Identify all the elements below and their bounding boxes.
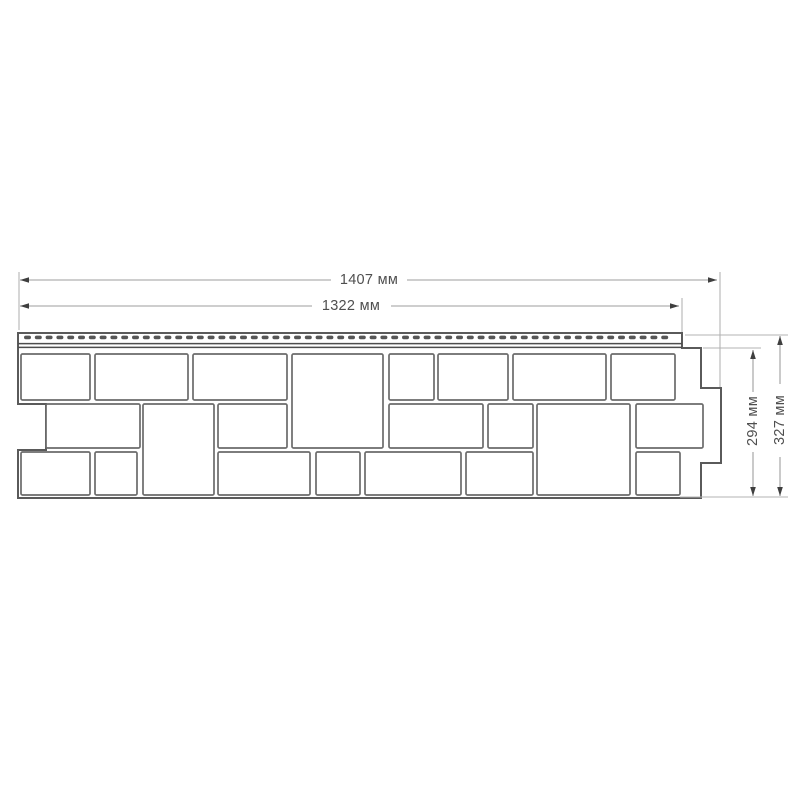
nail-slot xyxy=(499,336,506,340)
nail-slot xyxy=(24,336,31,340)
stone-block xyxy=(95,452,137,495)
nail-slot xyxy=(391,336,398,340)
nail-slot xyxy=(164,336,171,340)
nail-slot xyxy=(110,336,117,340)
nail-slot xyxy=(478,336,485,340)
nail-slot xyxy=(283,336,290,340)
nail-slot xyxy=(348,336,355,340)
technical-drawing-canvas: 1407 мм1322 мм294 мм327 мм xyxy=(0,0,800,800)
stone-block xyxy=(365,452,461,495)
nail-slot xyxy=(197,336,204,340)
nail-slot xyxy=(629,336,636,340)
nail-slot xyxy=(553,336,560,340)
nail-slot xyxy=(89,336,96,340)
nail-slot xyxy=(56,336,63,340)
stone-block xyxy=(466,452,533,495)
nail-slot xyxy=(305,336,312,340)
stone-block xyxy=(636,404,703,448)
nail-slot xyxy=(359,336,366,340)
nail-slot xyxy=(575,336,582,340)
stone-block xyxy=(218,452,310,495)
nail-slot xyxy=(67,336,74,340)
nail-slot xyxy=(208,336,215,340)
nail-slot xyxy=(78,336,85,340)
nail-slot xyxy=(586,336,593,340)
nail-slot xyxy=(424,336,431,340)
stone-block xyxy=(636,452,680,495)
stone-block xyxy=(95,354,188,400)
nail-slot xyxy=(542,336,549,340)
nail-slot xyxy=(100,336,107,340)
arrow-up-icon xyxy=(777,336,783,345)
nail-slot xyxy=(650,336,657,340)
stone-block xyxy=(218,404,287,448)
nail-slot xyxy=(434,336,441,340)
nail-slot xyxy=(251,336,258,340)
nail-slot xyxy=(186,336,193,340)
nail-slot xyxy=(370,336,377,340)
nail-slot xyxy=(326,336,333,340)
nail-slot xyxy=(121,336,128,340)
nail-slot xyxy=(154,336,161,340)
stone-block xyxy=(438,354,508,400)
nail-slot xyxy=(564,336,571,340)
arrow-right-icon xyxy=(708,277,717,283)
nail-slot xyxy=(510,336,517,340)
arrow-down-icon xyxy=(777,487,783,496)
nail-slot xyxy=(175,336,182,340)
dimension-label-height-body: 294 мм xyxy=(745,396,761,446)
stone-block xyxy=(389,354,434,400)
stone-block xyxy=(389,404,483,448)
nail-slot xyxy=(380,336,387,340)
nail-slot xyxy=(596,336,603,340)
stone-block xyxy=(316,452,360,495)
arrow-right-icon xyxy=(670,303,679,309)
stone-block xyxy=(143,404,214,495)
facade-panel-drawing: 1407 мм1322 мм294 мм327 мм xyxy=(0,0,800,800)
nail-slot xyxy=(607,336,614,340)
nail-slot xyxy=(46,336,53,340)
stone-block xyxy=(292,354,383,448)
nail-slot xyxy=(413,336,420,340)
arrow-left-icon xyxy=(20,303,29,309)
nail-slot xyxy=(661,336,668,340)
nail-slot xyxy=(337,336,344,340)
stone-block xyxy=(193,354,287,400)
stone-block xyxy=(611,354,675,400)
nail-slot xyxy=(445,336,452,340)
stone-block xyxy=(537,404,630,495)
nail-slot xyxy=(143,336,150,340)
nail-slot xyxy=(618,336,625,340)
nail-slot xyxy=(316,336,323,340)
dimension-label-height-total: 327 мм xyxy=(772,395,788,445)
arrow-down-icon xyxy=(750,487,756,496)
nail-slot xyxy=(640,336,647,340)
nail-slot xyxy=(229,336,236,340)
stone-block xyxy=(21,354,90,400)
nail-slot xyxy=(456,336,463,340)
arrow-up-icon xyxy=(750,350,756,359)
nail-slot xyxy=(532,336,539,340)
nail-slot xyxy=(272,336,279,340)
nail-slot xyxy=(35,336,42,340)
arrow-left-icon xyxy=(20,277,29,283)
dimension-label-width-lock: 1322 мм xyxy=(322,298,380,314)
nail-slot xyxy=(488,336,495,340)
stone-block xyxy=(488,404,533,448)
stone-block xyxy=(21,452,90,495)
stone-block xyxy=(46,404,140,448)
nail-slot xyxy=(262,336,269,340)
nail-slot xyxy=(402,336,409,340)
nail-slot xyxy=(467,336,474,340)
nail-slot xyxy=(294,336,301,340)
nail-slot xyxy=(240,336,247,340)
nail-slot xyxy=(218,336,225,340)
stone-block xyxy=(513,354,606,400)
nail-slot xyxy=(132,336,139,340)
dimension-label-width-total: 1407 мм xyxy=(340,272,398,288)
nail-slot xyxy=(521,336,528,340)
